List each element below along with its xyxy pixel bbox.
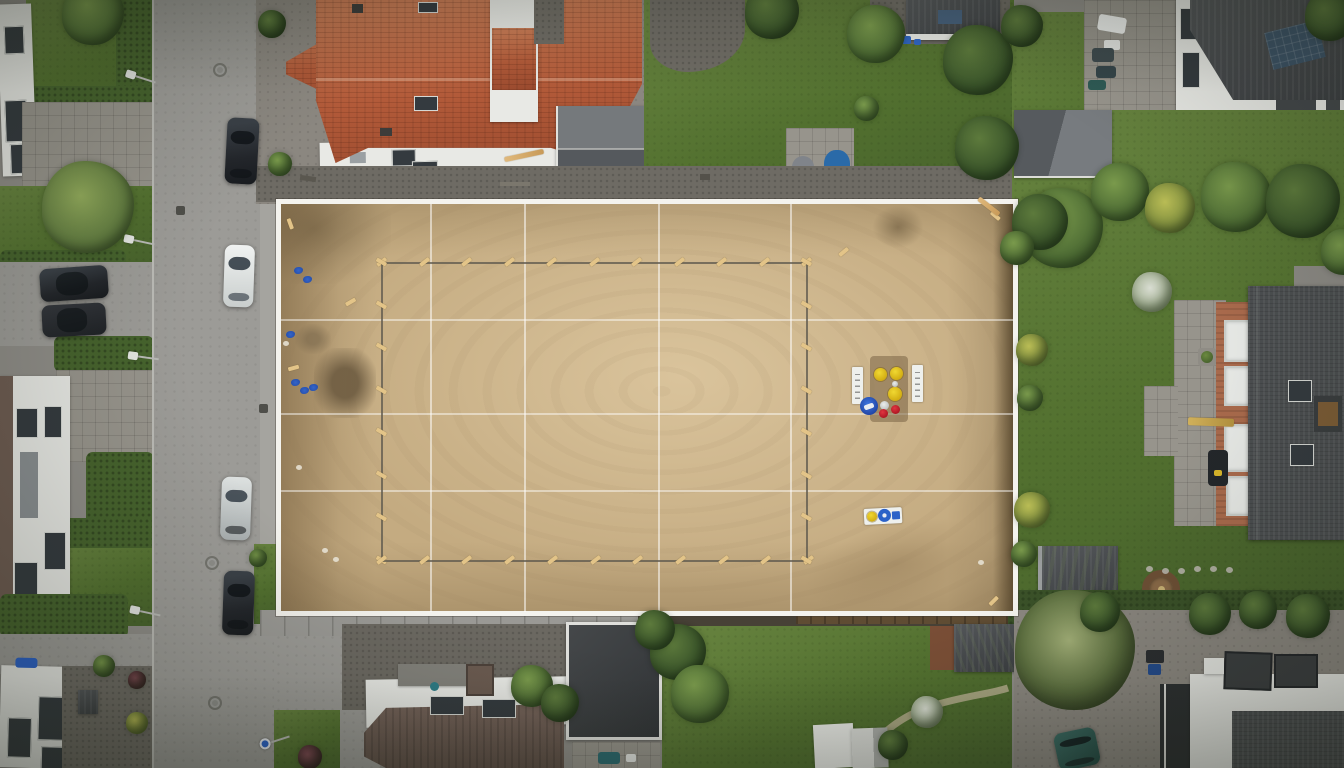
stepping-stone	[1210, 566, 1217, 572]
garden-shed	[78, 690, 98, 714]
chimney-scaffold	[1314, 396, 1342, 432]
mower-detail	[1214, 470, 1222, 476]
window	[44, 532, 66, 570]
rooftop-box	[1204, 658, 1224, 674]
house-bottom-left	[0, 665, 65, 768]
patio-chair	[1088, 80, 1106, 90]
window	[37, 696, 64, 741]
drain-grate	[259, 404, 268, 413]
brown-tile-roof	[364, 704, 564, 768]
patio-ext	[1144, 386, 1178, 456]
stepping-stone	[1194, 566, 1201, 572]
parked-car-white	[223, 244, 255, 307]
scaffold-boards	[1318, 402, 1338, 426]
drain-grate	[176, 206, 185, 215]
lamp-head	[125, 69, 137, 80]
tree	[1189, 593, 1231, 635]
debris	[500, 182, 530, 186]
tree	[1201, 162, 1271, 232]
parked-car-dark2	[41, 302, 107, 337]
tree	[1016, 334, 1048, 366]
small-lid	[892, 381, 898, 387]
skylight	[482, 699, 516, 718]
blue-box	[892, 511, 900, 519]
blue-bucket	[860, 397, 878, 415]
excavated-patch	[314, 348, 376, 418]
window	[1182, 52, 1200, 88]
roof-ridge	[316, 78, 642, 81]
roof-window	[414, 96, 438, 111]
window	[7, 717, 32, 758]
tree	[878, 730, 908, 760]
manhole-cover	[208, 696, 222, 710]
pebble	[978, 560, 984, 565]
curb-line	[152, 0, 154, 768]
pebble	[283, 341, 289, 346]
tree	[1000, 231, 1034, 265]
marker-board-right	[912, 365, 923, 402]
brick-house-roof	[1248, 286, 1344, 540]
storage-corner	[534, 0, 564, 44]
lamp-head	[129, 605, 140, 615]
hip-line	[1256, 286, 1258, 540]
lamp-pole	[131, 238, 155, 245]
rooftop-unit	[1274, 654, 1318, 688]
excavated-patch-small	[295, 324, 331, 354]
skylight	[430, 696, 464, 715]
skylight	[1288, 380, 1312, 402]
aerial-photo	[0, 0, 1344, 768]
door	[20, 452, 38, 518]
teal-item	[430, 682, 439, 691]
tree	[1080, 592, 1120, 632]
tree	[671, 665, 729, 723]
annex-roof	[492, 28, 536, 90]
plot-grid-line	[281, 319, 1013, 321]
lamp-pole	[137, 609, 161, 616]
tree	[42, 161, 134, 253]
soil-strip-right	[993, 204, 1013, 611]
tree	[1132, 272, 1172, 312]
tree	[1017, 385, 1043, 411]
bucket-label	[863, 402, 874, 410]
waste-bin	[1146, 650, 1164, 663]
plant	[1201, 351, 1213, 363]
tree	[93, 655, 115, 677]
yellow-lid	[888, 387, 902, 401]
skylight	[1290, 444, 1314, 466]
chimney	[380, 128, 392, 136]
patio-below	[572, 742, 660, 768]
blue-reel	[878, 509, 892, 523]
tree	[911, 696, 943, 728]
pebble	[296, 465, 302, 470]
window	[4, 26, 25, 55]
tree	[1286, 594, 1330, 638]
tree	[1011, 541, 1037, 567]
debris	[700, 174, 710, 180]
yellow-reel	[867, 511, 878, 522]
window	[44, 406, 62, 438]
rooftop-blue-item	[15, 658, 37, 669]
blue-item	[914, 39, 921, 45]
white-item	[626, 754, 636, 762]
red-lid	[879, 409, 888, 418]
tree	[1091, 163, 1149, 221]
tree	[268, 152, 292, 176]
parked-car-teal	[1053, 726, 1102, 768]
tree	[258, 10, 286, 38]
roof-window	[418, 2, 438, 13]
patio-top-right	[1084, 0, 1186, 118]
tree	[847, 5, 905, 63]
stepping-stone	[1162, 568, 1169, 574]
stepping-stone	[1146, 566, 1153, 572]
frame-line	[1164, 684, 1166, 768]
tree	[1001, 5, 1043, 47]
hose-reel-board	[864, 507, 903, 525]
shed-dark-roof	[954, 624, 1016, 672]
marking-equipment-station	[848, 354, 928, 428]
tree	[955, 116, 1019, 180]
tree	[128, 671, 146, 689]
window	[16, 408, 38, 438]
tree	[1239, 591, 1277, 629]
chimney-box	[466, 664, 494, 696]
house-mid-left	[0, 376, 70, 628]
chimney	[352, 4, 363, 13]
tree	[1014, 492, 1050, 528]
tree	[541, 684, 579, 722]
garden-hut	[813, 723, 855, 768]
parked-car-dark	[224, 117, 259, 185]
yellow-lid	[874, 368, 887, 381]
hedge	[0, 594, 128, 638]
parked-car-dark	[222, 570, 255, 635]
teal-furniture	[598, 752, 620, 764]
lamp-head	[123, 234, 134, 244]
pebble	[333, 557, 339, 562]
tree	[635, 610, 675, 650]
potted-plant	[1198, 348, 1216, 366]
stepping-stone	[1178, 568, 1185, 574]
plot-grid-line	[790, 204, 792, 612]
plot-grid-line	[281, 490, 1013, 492]
lamp-head	[127, 351, 138, 360]
tree	[854, 96, 879, 121]
hip-roof-bottom-right	[1232, 708, 1344, 768]
tree	[298, 745, 322, 768]
blue-bin	[1148, 664, 1161, 675]
yellow-lid	[890, 367, 903, 380]
tree	[126, 712, 148, 734]
tree	[1266, 164, 1340, 238]
front-path	[56, 370, 152, 462]
wood-plank	[1188, 417, 1234, 427]
marker-board-left	[852, 367, 863, 404]
gravel-strip	[256, 166, 1016, 202]
tree	[249, 549, 267, 567]
moss-streaks	[954, 624, 1016, 672]
roof-edge	[0, 376, 13, 628]
patio-chair	[1096, 66, 1116, 78]
patio-furniture	[1097, 14, 1127, 35]
manhole-cover	[213, 63, 227, 77]
red-lid	[891, 405, 900, 414]
manhole-cover	[205, 556, 219, 570]
plot-grid-line	[658, 204, 660, 612]
lamp-pole	[135, 355, 159, 360]
parked-car-silver	[220, 476, 252, 540]
plot-grid-line	[524, 204, 526, 612]
plot-grid-line	[430, 204, 432, 612]
stepping-stone	[1226, 567, 1233, 573]
garden-shed-roof	[1014, 110, 1112, 178]
tree	[1145, 183, 1195, 233]
rooftop-unit	[1223, 651, 1272, 691]
parked-car-dark	[39, 265, 109, 303]
pebble	[322, 548, 328, 553]
soil-mound	[873, 206, 923, 248]
solar-panel	[938, 10, 962, 24]
patio-chair	[1092, 48, 1114, 62]
lawn-mower	[1208, 450, 1228, 486]
